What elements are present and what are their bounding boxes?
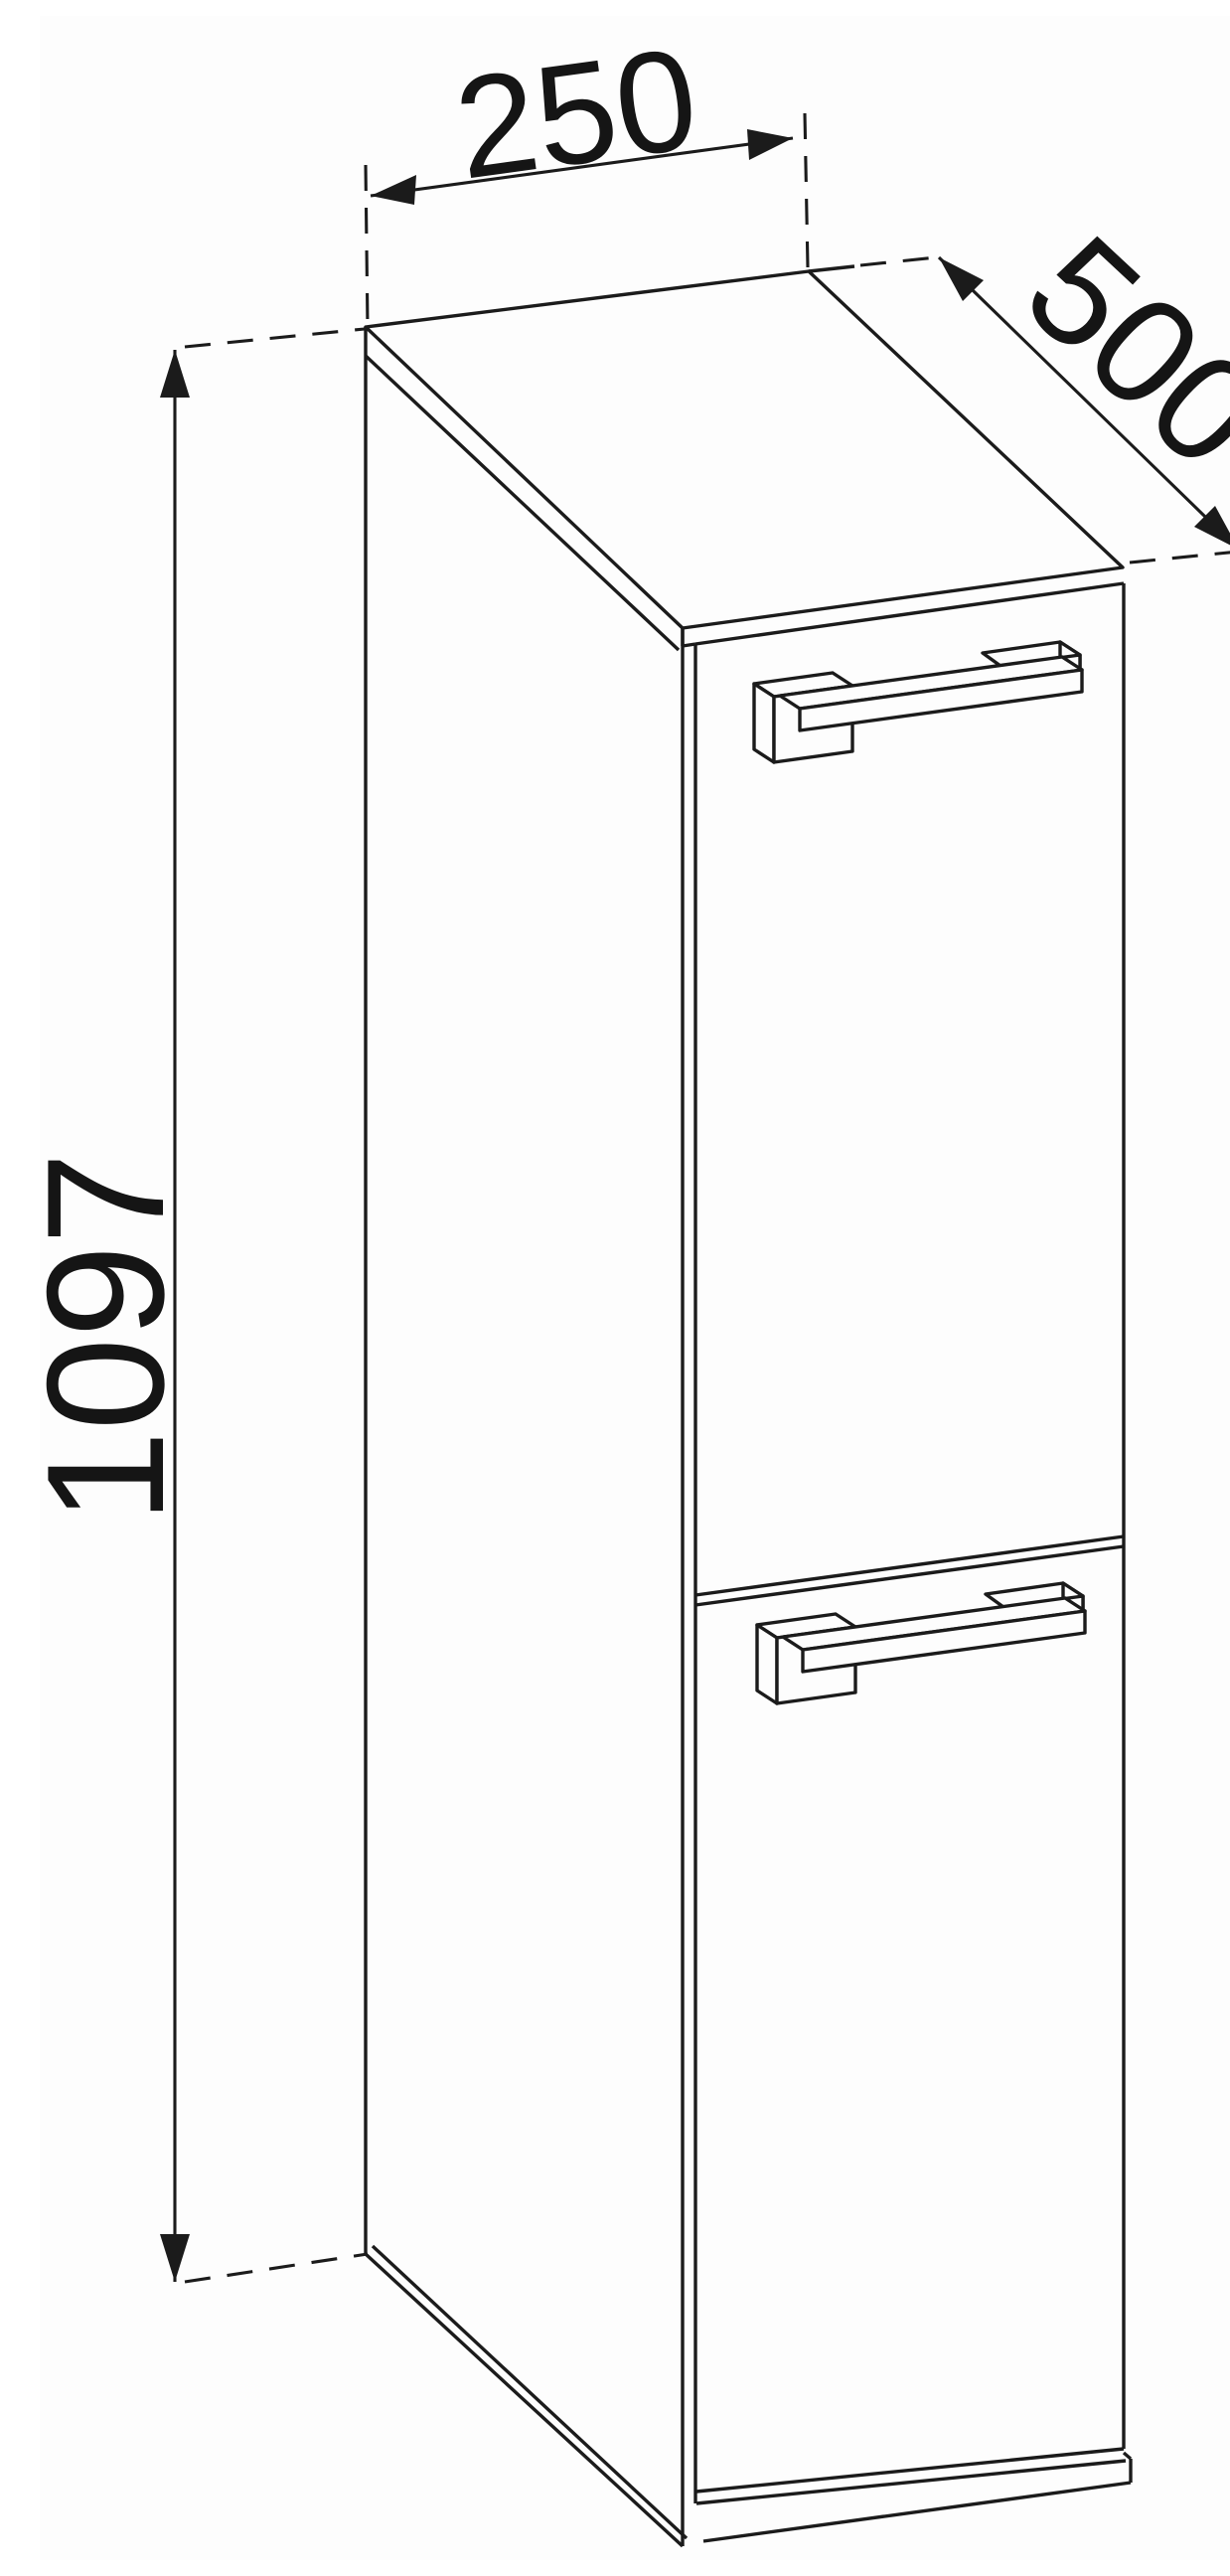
dimension-height: 1097 <box>40 329 368 2282</box>
cabinet-body <box>366 271 1131 2546</box>
side-panel <box>366 327 687 2546</box>
arrowhead-right-icon <box>747 129 793 160</box>
lower-door-handle <box>757 1583 1085 1703</box>
arrowhead-top-icon <box>160 350 190 398</box>
technical-drawing: 250 500 1097 <box>40 16 1230 2560</box>
arrowhead-bottom-icon <box>160 2234 190 2282</box>
front-face <box>683 583 1131 2541</box>
arrowhead-left-icon <box>371 175 416 205</box>
height-dimension-label: 1097 <box>40 1152 199 1524</box>
width-dimension-label: 250 <box>446 17 706 209</box>
upper-door <box>695 583 1124 2503</box>
upper-door-handle <box>754 642 1082 762</box>
depth-dimension-label: 500 <box>995 204 1230 499</box>
cabinet-diagram: 250 500 1097 <box>40 16 1230 2560</box>
